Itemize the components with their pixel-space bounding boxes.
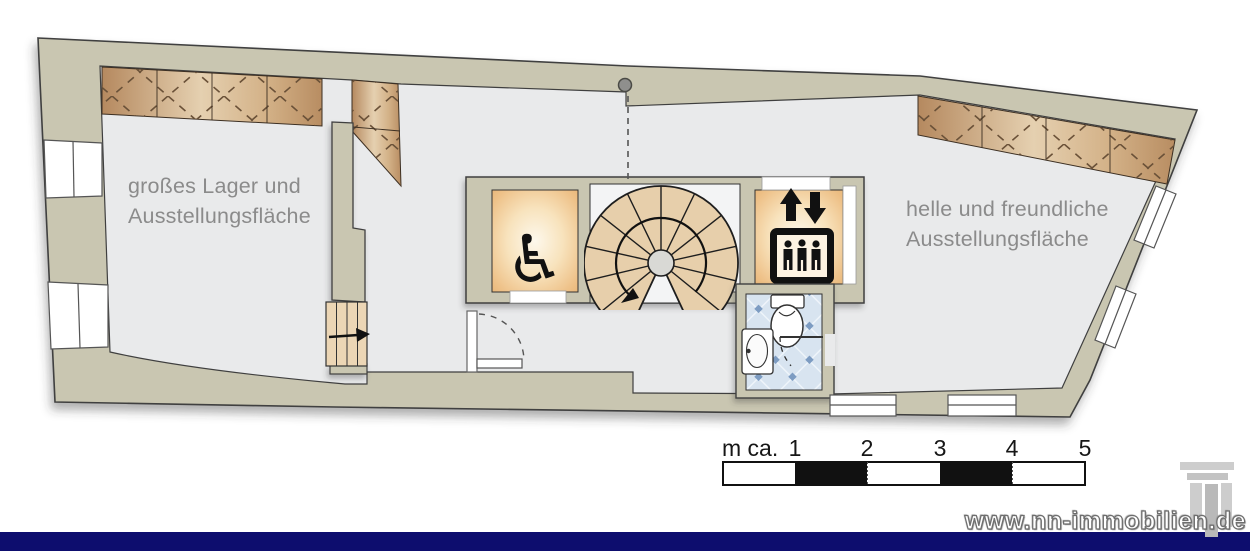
wc-room bbox=[736, 284, 835, 398]
scale-tick-4: 4 bbox=[1006, 435, 1019, 462]
scale-tick-3: 3 bbox=[934, 435, 947, 462]
right-room-label-line1: helle und freundliche bbox=[906, 194, 1109, 224]
wheelchair-icon: ♿ bbox=[505, 221, 564, 298]
agency-watermark: www.nn-immobilien.de bbox=[965, 507, 1246, 536]
floor-plan-page: ♿ bbox=[0, 0, 1250, 551]
scale-bar bbox=[723, 462, 1085, 485]
sink-icon bbox=[742, 329, 773, 374]
floor-plan-drawing: ♿ bbox=[0, 0, 1250, 551]
scale-tick-5: 5 bbox=[1079, 435, 1092, 462]
right-room-label-line2: Ausstellungsfläche bbox=[906, 224, 1109, 254]
small-staircase bbox=[326, 302, 370, 366]
scale-tick-1: 1 bbox=[789, 435, 802, 462]
toilet-icon bbox=[771, 295, 804, 347]
left-room-label-line1: großes Lager und bbox=[128, 171, 311, 201]
right-room-label: helle und freundliche Ausstellungsfläche bbox=[906, 194, 1109, 254]
left-room-label-line2: Ausstellungsfläche bbox=[128, 201, 311, 231]
left-room-label: großes Lager und Ausstellungsfläche bbox=[128, 171, 311, 231]
entrance-pivot-dot bbox=[619, 79, 632, 92]
scale-unit-label: m ca. bbox=[722, 435, 778, 462]
scale-tick-2: 2 bbox=[861, 435, 874, 462]
